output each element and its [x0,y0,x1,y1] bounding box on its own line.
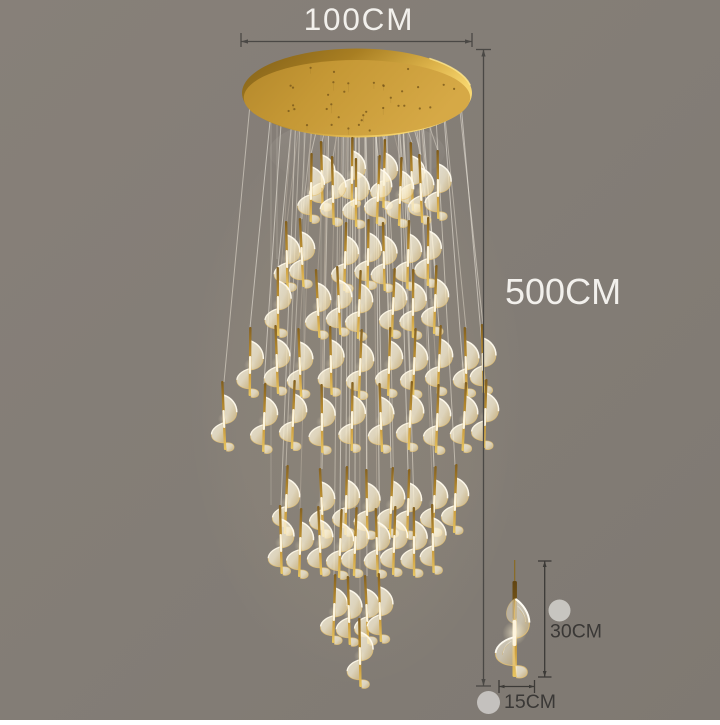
svg-text:30CM: 30CM [550,621,602,643]
svg-text:100CM: 100CM [304,1,415,37]
svg-text:15CM: 15CM [504,691,556,713]
svg-text:500CM: 500CM [505,271,621,312]
